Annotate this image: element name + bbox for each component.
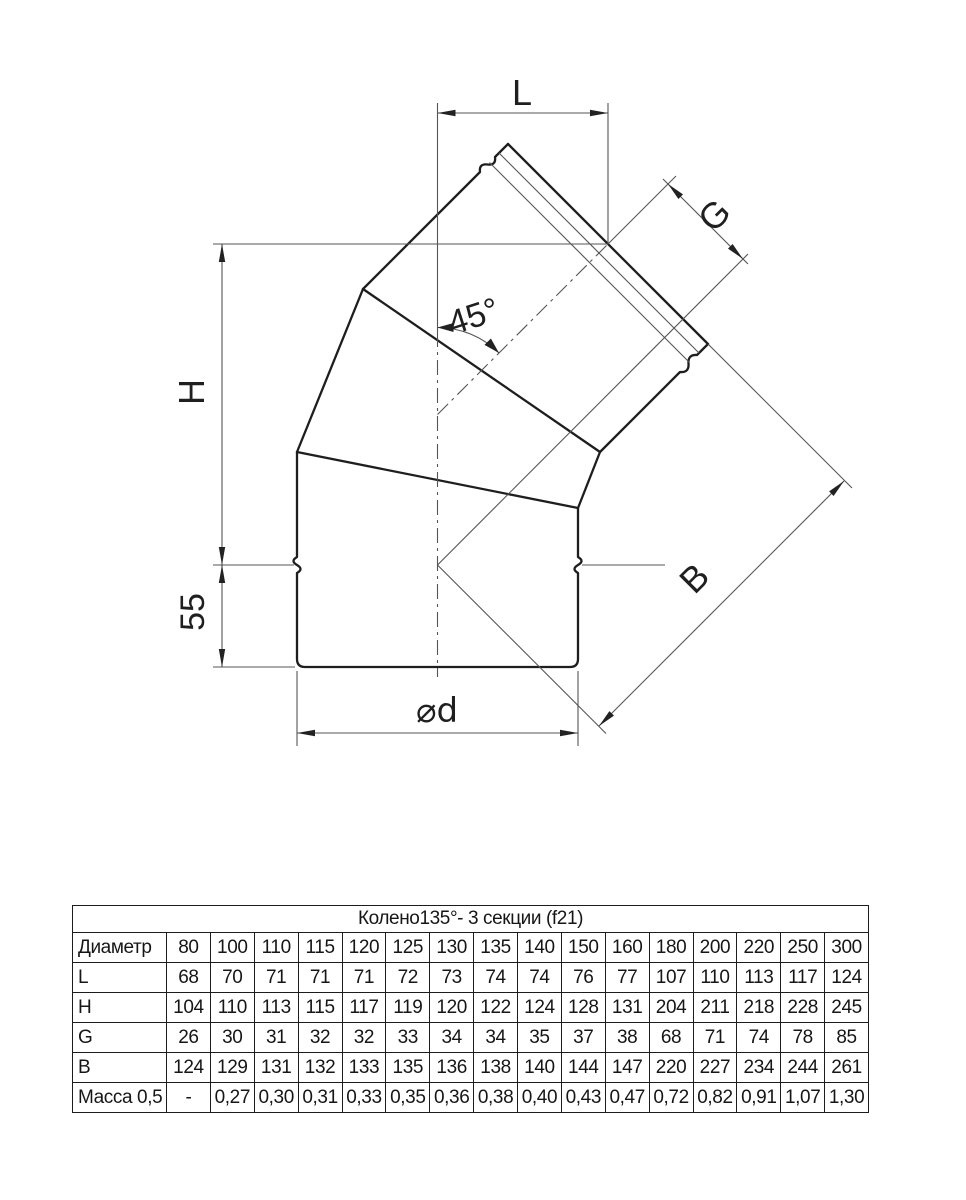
table-cell: 150: [561, 933, 605, 963]
dimension-B-extension-upper: [708, 344, 852, 488]
table-cell: 135: [386, 1053, 430, 1083]
table-cell: 0,31: [298, 1083, 342, 1113]
table-cell: 85: [825, 1023, 869, 1053]
table-cell: 180: [649, 933, 693, 963]
table-row: H104110113115117119120122124128131204211…: [73, 993, 869, 1023]
middle-section-right-edge: [578, 452, 600, 508]
table-cell: 234: [737, 1053, 781, 1083]
table-cell: 78: [781, 1023, 825, 1053]
dimension-H-arrow-bottom: [219, 547, 225, 565]
row-label: G: [73, 1023, 167, 1053]
angle-arc-arrow-right: [485, 339, 500, 354]
table-cell: 113: [254, 993, 298, 1023]
table-cell: 133: [342, 1053, 386, 1083]
dimension-L-arrow-right: [590, 110, 608, 116]
row-label: Масса 0,5: [73, 1083, 167, 1113]
table-cell: 128: [561, 993, 605, 1023]
angle-label: 45°: [443, 291, 504, 343]
table-cell: 144: [561, 1053, 605, 1083]
table-cell: 30: [210, 1023, 254, 1053]
dimension-diameter: ⌀d: [297, 671, 578, 746]
table-cell: 200: [693, 933, 737, 963]
table-cell: 71: [693, 1023, 737, 1053]
table-cell: 227: [693, 1053, 737, 1083]
table-cell: 80: [167, 933, 211, 963]
spec-table: Колено135°- 3 секции (f21) Диаметр801001…: [72, 905, 869, 1113]
table-cell: 110: [693, 963, 737, 993]
table-cell: 120: [342, 933, 386, 963]
table-cell: 218: [737, 993, 781, 1023]
table-cell: 71: [342, 963, 386, 993]
table-cell: 35: [518, 1023, 562, 1053]
dimension-H-label: H: [171, 379, 212, 405]
dimension-55-arrow-bottom: [219, 649, 225, 667]
table-cell: 107: [649, 963, 693, 993]
dimension-B: B: [599, 344, 852, 726]
table-cell: 1,07: [781, 1083, 825, 1113]
table-row: G26303132323334343537386871747885: [73, 1023, 869, 1053]
table-row: B124129131132133135136138140144147220227…: [73, 1053, 869, 1083]
table-cell: 0,72: [649, 1083, 693, 1113]
table-cell: 211: [693, 993, 737, 1023]
dimension-H: H: [171, 244, 608, 565]
table-cell: 31: [254, 1023, 298, 1053]
table-cell: 117: [781, 963, 825, 993]
elbow-drawing: L G H 55: [0, 0, 966, 900]
dimension-diameter-label: ⌀d: [416, 691, 458, 731]
dimension-diameter-arrow-left: [297, 730, 315, 736]
table-cell: 71: [298, 963, 342, 993]
table-title: Колено135°- 3 секции (f21): [73, 906, 869, 933]
table-cell: 140: [518, 933, 562, 963]
table-cell: 74: [737, 1023, 781, 1053]
dimension-L-arrow-left: [438, 110, 456, 116]
table-cell: 132: [298, 1053, 342, 1083]
dimension-55-label: 55: [174, 593, 212, 631]
inclined-centerline-extension: [608, 176, 676, 244]
table-cell: 32: [342, 1023, 386, 1053]
dimension-55: 55: [174, 565, 295, 667]
table-cell: 140: [518, 1053, 562, 1083]
dimension-H-arrow-top: [219, 244, 225, 262]
table-cell: 204: [649, 993, 693, 1023]
table-cell: 0,30: [254, 1083, 298, 1113]
table-cell: 0,82: [693, 1083, 737, 1113]
dimension-diameter-arrow-right: [560, 730, 578, 736]
table-cell: 32: [298, 1023, 342, 1053]
row-label: H: [73, 993, 167, 1023]
table-cell: 131: [605, 993, 649, 1023]
table-cell: 220: [649, 1053, 693, 1083]
table-cell: 0,35: [386, 1083, 430, 1113]
table-cell: 124: [167, 1053, 211, 1083]
table-cell: 110: [254, 933, 298, 963]
table-cell: 70: [210, 963, 254, 993]
table-cell: 0,27: [210, 1083, 254, 1113]
table-row: Масса 0,5-0,270,300,310,330,350,360,380,…: [73, 1083, 869, 1113]
table-cell: 124: [825, 963, 869, 993]
middle-section-left-edge: [297, 289, 363, 452]
table-cell: 100: [210, 933, 254, 963]
table-cell: 135: [474, 933, 518, 963]
table-cell: 34: [430, 1023, 474, 1053]
row-label: B: [73, 1053, 167, 1083]
dimension-55-arrow-top: [219, 565, 225, 583]
dimension-B-label: B: [671, 555, 717, 601]
row-label: L: [73, 963, 167, 993]
table-cell: 73: [430, 963, 474, 993]
dimension-G: G: [663, 179, 748, 264]
table-cell: 33: [386, 1023, 430, 1053]
table-title-row: Колено135°- 3 секции (f21): [73, 906, 869, 933]
table-cell: 110: [210, 993, 254, 1023]
dimension-G-label: G: [690, 191, 739, 240]
table-cell: 228: [781, 993, 825, 1023]
table-cell: 0,91: [737, 1083, 781, 1113]
table-cell: 0,33: [342, 1083, 386, 1113]
table-cell: 71: [254, 963, 298, 993]
table-cell: 76: [561, 963, 605, 993]
angle-annotation: 45°: [438, 291, 504, 353]
table-cell: 130: [430, 933, 474, 963]
table-cell: 138: [474, 1053, 518, 1083]
table-cell: 120: [430, 993, 474, 1023]
dimension-L-label: L: [512, 72, 532, 113]
table-cell: 113: [737, 963, 781, 993]
top-section-right-edge: [600, 344, 708, 452]
table-cell: 119: [386, 993, 430, 1023]
table-row: Диаметр801001101151201251301351401501601…: [73, 933, 869, 963]
table-cell: 74: [518, 963, 562, 993]
table-cell: 300: [825, 933, 869, 963]
table-cell: 122: [474, 993, 518, 1023]
table-row: L6870717171727374747677107110113117124: [73, 963, 869, 993]
table-cell: -: [167, 1083, 211, 1113]
table-cell: 125: [386, 933, 430, 963]
table-cell: 160: [605, 933, 649, 963]
table-cell: 0,47: [605, 1083, 649, 1113]
table-cell: 38: [605, 1023, 649, 1053]
table-cell: 77: [605, 963, 649, 993]
table-cell: 104: [167, 993, 211, 1023]
construction-diagonal-lower: [438, 565, 607, 734]
table-cell: 0,40: [518, 1083, 562, 1113]
table-cell: 261: [825, 1053, 869, 1083]
table-cell: 26: [167, 1023, 211, 1053]
table-cell: 117: [342, 993, 386, 1023]
dimension-B-line: [599, 481, 844, 726]
table-cell: 0,38: [474, 1083, 518, 1113]
table-cell: 0,43: [561, 1083, 605, 1113]
table-cell: 129: [210, 1053, 254, 1083]
table-cell: 1,30: [825, 1083, 869, 1113]
table-cell: 37: [561, 1023, 605, 1053]
row-label: Диаметр: [73, 933, 167, 963]
table-cell: 34: [474, 1023, 518, 1053]
table-cell: 72: [386, 963, 430, 993]
table-cell: 244: [781, 1053, 825, 1083]
table-cell: 136: [430, 1053, 474, 1083]
table-cell: 68: [649, 1023, 693, 1053]
technical-drawing-page: L G H 55: [0, 0, 966, 1200]
table-cell: 131: [254, 1053, 298, 1083]
elbow-outline: [294, 144, 709, 667]
table-cell: 115: [298, 933, 342, 963]
table-cell: 220: [737, 933, 781, 963]
table-cell: 0,36: [430, 1083, 474, 1113]
table-cell: 68: [167, 963, 211, 993]
table-cell: 115: [298, 993, 342, 1023]
table-cell: 245: [825, 993, 869, 1023]
table-cell: 74: [474, 963, 518, 993]
table-cell: 250: [781, 933, 825, 963]
spec-table-body: Диаметр801001101151201251301351401501601…: [73, 933, 869, 1113]
table-cell: 147: [605, 1053, 649, 1083]
top-section-left-edge: [363, 144, 508, 289]
table-cell: 124: [518, 993, 562, 1023]
